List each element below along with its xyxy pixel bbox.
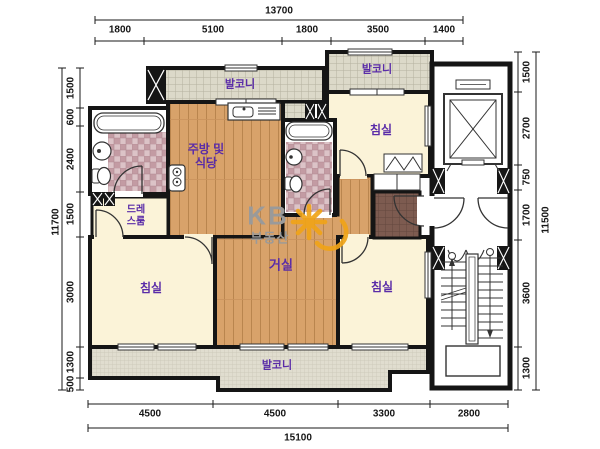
window	[225, 65, 257, 71]
column-icon	[432, 246, 445, 270]
room-entrance	[374, 192, 420, 238]
window	[352, 344, 408, 350]
dim-right-seg: 3600	[522, 282, 533, 304]
dim-right-seg: 750	[522, 169, 533, 186]
bathtub-icon	[286, 122, 332, 140]
balcony-door	[350, 89, 404, 95]
dim-right-total: 11500	[541, 206, 552, 233]
sink-icon	[286, 149, 302, 165]
dim-top-total: 13700	[265, 6, 293, 17]
column-icon	[317, 103, 327, 120]
window	[288, 344, 328, 350]
dim-top-seg: 5100	[202, 25, 224, 36]
dim-left-seg: 500	[66, 376, 77, 393]
bathtub-icon	[94, 113, 164, 133]
elevator-icon	[444, 94, 502, 171]
window	[240, 344, 284, 350]
dim-top-seg: 3500	[367, 25, 389, 36]
toilet-icon	[92, 168, 111, 185]
dim-left-seg: 2400	[66, 148, 77, 170]
washer-icon	[169, 165, 185, 191]
column-icon	[92, 192, 103, 206]
label-balcony-top-left: 발코니	[225, 79, 255, 92]
label-dressroom-line2: 스룸	[127, 216, 145, 228]
elevator-call-panel	[456, 80, 490, 89]
window	[158, 344, 196, 350]
dim-left-seg: 3000	[66, 281, 77, 303]
label-balcony-bottom: 발코니	[262, 360, 292, 373]
shoe-closet-icon	[374, 174, 420, 190]
sink-icon	[93, 142, 111, 160]
column-icon	[146, 68, 166, 102]
window	[425, 106, 431, 146]
window	[425, 252, 431, 298]
window	[118, 344, 154, 350]
label-kitchen-line2: 식당	[188, 157, 224, 171]
column-icon	[432, 168, 445, 194]
dim-left-seg: 600	[66, 109, 77, 126]
label-dressroom-line1: 드레	[127, 205, 145, 217]
dim-bottom-seg: 4500	[139, 409, 161, 420]
label-bedroom-bottom-right: 침실	[371, 281, 393, 295]
window	[348, 49, 392, 55]
label-kitchen: 주방 및 식당	[188, 143, 224, 171]
dim-bottom-seg: 4500	[264, 409, 286, 420]
dim-right-seg: 1700	[522, 204, 533, 226]
label-kitchen-line1: 주방 및	[188, 143, 224, 157]
dim-bottom-seg: 3300	[373, 409, 395, 420]
dim-bottom-total: 15100	[284, 433, 312, 444]
dim-left-seg: 1500	[66, 203, 77, 225]
floor-plan-canvas: 발코니 발코니 침실 주방 및 식당 드레 스룸 침실 거실 침실 발코니 KB…	[0, 0, 600, 449]
label-bedroom-left: 침실	[140, 282, 162, 296]
floor-plan-drawing	[0, 0, 600, 449]
dim-bottom-seg: 2800	[458, 409, 480, 420]
label-bedroom-top-right: 침실	[370, 124, 392, 138]
column-icon	[305, 103, 315, 120]
column-icon	[104, 192, 115, 206]
dim-right-seg: 1500	[522, 61, 533, 83]
dim-left-total: 11700	[51, 208, 62, 235]
kitchen-counter-icon	[228, 103, 280, 120]
dim-right-seg: 2700	[522, 117, 533, 139]
label-living-room: 거실	[269, 259, 293, 274]
room-balcony-bottom	[90, 347, 428, 390]
dim-top-seg: 1800	[109, 25, 131, 36]
wardrobe-icon	[384, 154, 422, 172]
label-balcony-top-right: 발코니	[362, 64, 392, 77]
dim-top-seg: 1400	[433, 25, 455, 36]
column-icon	[497, 168, 510, 194]
label-dressroom: 드레 스룸	[127, 205, 145, 228]
kb-brand-subtext: 부동산	[251, 228, 290, 247]
dim-left-seg: 1300	[66, 351, 77, 373]
dim-right-seg: 1300	[522, 357, 533, 379]
toilet-icon	[285, 176, 302, 192]
dim-top-seg: 1800	[296, 25, 318, 36]
dim-left-seg: 1500	[66, 77, 77, 99]
